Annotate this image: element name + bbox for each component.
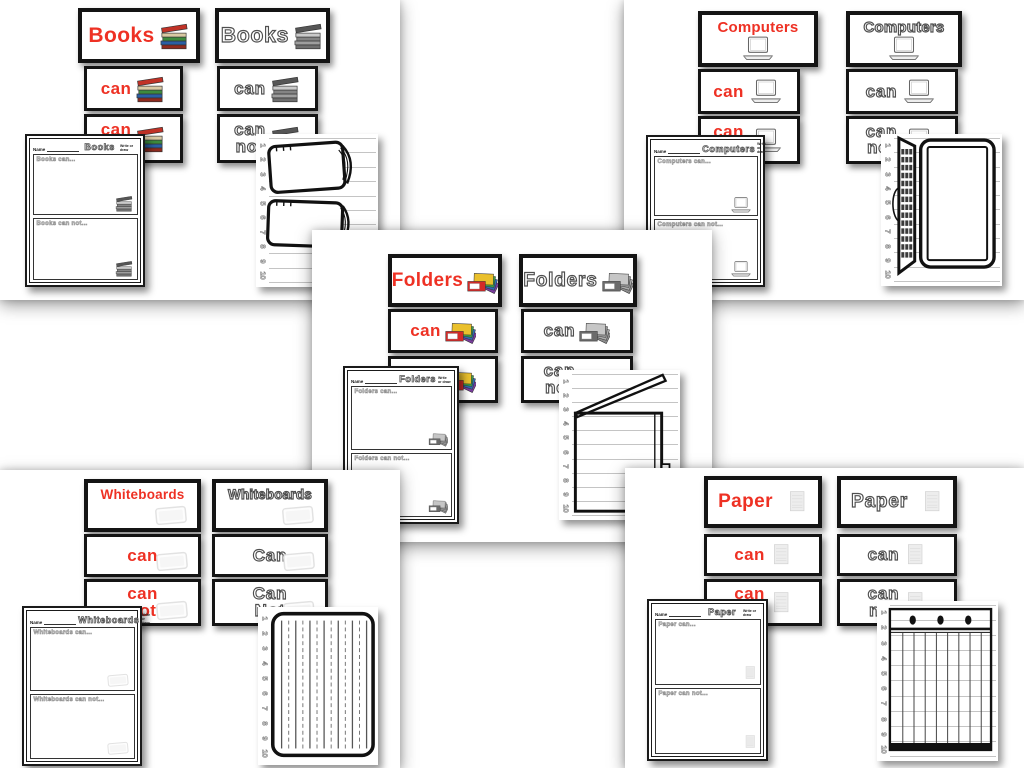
- worksheet-title: Folders: [399, 374, 436, 384]
- worksheet-can-prompt: Paper can...: [659, 622, 757, 628]
- folders-can-card-red: can: [388, 309, 498, 353]
- worksheet-corner-note: Write or draw: [438, 376, 451, 384]
- worksheet-can-box: Computers can...: [654, 156, 758, 216]
- worksheet-header: Name Folders Write or draw: [349, 372, 453, 384]
- books-stack-icon: [134, 75, 166, 103]
- worksheet-corner-note: Write or draw: [120, 144, 137, 152]
- computers-title-card-outline: Computers: [846, 11, 962, 67]
- computers-title-card-red: Computers: [698, 11, 818, 67]
- card-title-text: Computers: [718, 19, 799, 36]
- worksheet-corner-note: Write or draw: [757, 142, 766, 154]
- worksheet-name-line: [44, 619, 76, 625]
- worksheet-name-line: [47, 146, 79, 152]
- worksheet-corner-note: Write or draw: [743, 609, 760, 617]
- card-can-text: can: [866, 82, 898, 102]
- worksheet-can-box: Paper can...: [655, 619, 761, 685]
- laptop-icon: [747, 79, 785, 104]
- paper-title-card-red: Paper: [704, 476, 822, 528]
- worksheet-name-label: Name: [30, 620, 42, 625]
- folders-title-card-outline: Folders: [519, 254, 637, 307]
- laptop-icon: [900, 79, 938, 104]
- worksheet-name-line: [365, 378, 397, 384]
- worksheet-title: Paper: [703, 607, 741, 617]
- whiteboards-can-card-red: can: [84, 534, 201, 577]
- laptop-icon: [728, 261, 754, 277]
- worksheet-corner-note: Write or draw: [141, 613, 150, 625]
- whiteboards-title-card-red: Whiteboards: [84, 479, 201, 532]
- whiteboard-icon: [105, 740, 131, 756]
- card-can-text: can: [410, 321, 441, 341]
- books-can-card-red: can: [84, 66, 183, 111]
- card-title-text: Paper: [718, 491, 773, 513]
- paper-sheet-icon: [768, 541, 792, 569]
- worksheet-title: Computers: [702, 144, 755, 154]
- worksheet-title: Whiteboards: [78, 615, 139, 625]
- paper-worksheet-page: Name Paper Write or draw Paper can... Pa…: [647, 599, 768, 761]
- whiteboards-can-card-outline: Can: [212, 534, 328, 577]
- whiteboard-line-art: [258, 607, 378, 765]
- whiteboards-preview-panel[interactable]: Whiteboards Whiteboards can can not Can …: [0, 470, 400, 768]
- worksheet-can-prompt: Whiteboards can...: [34, 630, 131, 636]
- worksheet-can-not-prompt: Computers can not...: [658, 222, 754, 228]
- computers-can-card-red: can: [698, 69, 800, 114]
- whiteboard-icon: [277, 503, 319, 527]
- books-stack-icon: [114, 195, 134, 212]
- paper-sheet-icon: [919, 488, 943, 516]
- line-numbers-column: 12345678910: [882, 138, 894, 282]
- worksheet-can-box: Whiteboards can...: [30, 627, 135, 691]
- books-stack-icon: [158, 22, 190, 50]
- worksheet-can-box: Folders can...: [351, 386, 452, 450]
- whiteboard-icon: [151, 549, 193, 573]
- worksheet-header: Name Books Write or draw: [31, 140, 139, 152]
- folders-icon: [428, 430, 448, 447]
- line-numbers-column: 12345678910: [259, 611, 271, 761]
- worksheet-can-box: Books can...: [33, 154, 138, 216]
- worksheet-can-not-box: Paper can not...: [655, 688, 761, 754]
- whiteboard-icon: [278, 549, 320, 573]
- worksheet-can-prompt: Computers can...: [658, 159, 754, 165]
- notebook-paper-line-art: [877, 601, 998, 761]
- paper-writing-page: 12345678910: [877, 601, 998, 761]
- worksheet-header: Name Computers Write or draw: [652, 141, 759, 154]
- worksheet-name-label: Name: [33, 147, 45, 152]
- line-numbers-column: 12345678910: [878, 605, 890, 757]
- laptop-icon: [728, 197, 754, 213]
- whiteboard-icon: [151, 598, 193, 622]
- whiteboard-icon: [150, 503, 192, 527]
- computers-can-card-outline: can: [846, 69, 958, 114]
- folders-icon: [466, 267, 498, 295]
- card-can-text: can: [234, 79, 266, 99]
- card-title-text: Folders: [392, 270, 463, 292]
- books-stack-icon: [269, 75, 301, 103]
- worksheet-can-not-prompt: Books can not...: [37, 221, 134, 227]
- laptop-icon: [885, 36, 923, 61]
- folders-icon: [578, 317, 610, 345]
- worksheet-name-line: [669, 611, 701, 617]
- worksheet-can-prompt: Books can...: [37, 157, 134, 163]
- whiteboards-title-card-outline: Whiteboards: [212, 479, 328, 532]
- worksheet-can-not-box: Whiteboards can not...: [30, 694, 135, 758]
- worksheet-name-label: Name: [655, 612, 667, 617]
- laptop-icon: [739, 36, 777, 61]
- card-title-text: Whiteboards: [101, 487, 185, 502]
- paper-sheet-icon: [742, 664, 757, 682]
- card-can-text: can: [544, 321, 576, 341]
- folders-icon: [444, 317, 476, 345]
- line-numbers-column: 12345678910: [257, 138, 269, 283]
- whiteboard-icon: [105, 672, 131, 688]
- books-title-card-red: Books: [78, 8, 200, 63]
- folders-title-card-red: Folders: [388, 254, 502, 307]
- card-title-text: Folders: [523, 270, 597, 292]
- books-stack-icon: [292, 22, 324, 50]
- worksheet-can-prompt: Folders can...: [355, 389, 448, 395]
- computers-writing-page: 12345678910: [881, 134, 1002, 286]
- paper-sheet-icon: [902, 541, 926, 569]
- card-title-text: Computers: [864, 19, 945, 36]
- folders-icon: [601, 267, 633, 295]
- card-can-text: can: [734, 545, 765, 565]
- card-title-text: Books: [88, 24, 154, 48]
- paper-can-card-outline: can: [837, 534, 957, 576]
- worksheet-name-line: [668, 148, 700, 154]
- paper-sheet-icon: [784, 488, 808, 516]
- books-can-card-outline: can: [217, 66, 318, 111]
- worksheet-can-not-prompt: Whiteboards can not...: [34, 697, 131, 703]
- card-can-text: can: [101, 79, 132, 99]
- worksheet-can-not-prompt: Folders can not...: [355, 456, 448, 462]
- folders-icon: [428, 497, 448, 514]
- folders-can-card-outline: can: [521, 309, 633, 353]
- card-can-text: can: [713, 82, 744, 102]
- worksheet-name-label: Name: [654, 149, 666, 154]
- paper-can-card-red: can: [704, 534, 822, 576]
- worksheet-title: Books: [81, 142, 118, 152]
- whiteboards-worksheet-page: Name Whiteboards Write or draw Whiteboar…: [22, 606, 142, 766]
- worksheet-can-not-prompt: Paper can not...: [659, 691, 757, 697]
- paper-preview-panel[interactable]: Paper Paper can can not can can not: [625, 468, 1024, 768]
- card-title-text: Books: [221, 24, 289, 48]
- books-worksheet-page: Name Books Write or draw Books can... Bo…: [25, 134, 145, 287]
- card-title-text: Paper: [851, 491, 908, 513]
- worksheet-name-label: Name: [351, 379, 363, 384]
- worksheet-can-not-box: Books can not...: [33, 218, 138, 280]
- laptop-line-art: [881, 134, 1002, 286]
- line-numbers-column: 12345678910: [560, 374, 572, 516]
- paper-sheet-icon: [742, 733, 757, 751]
- paper-sheet-icon: [768, 589, 792, 617]
- worksheet-header: Name Whiteboards Write or draw: [28, 612, 136, 625]
- books-title-card-outline: Books: [215, 8, 330, 63]
- card-title-text: Whiteboards: [228, 487, 312, 502]
- worksheet-header: Name Paper Write or draw: [653, 605, 762, 617]
- whiteboards-writing-page: 12345678910: [258, 607, 378, 765]
- paper-title-card-outline: Paper: [837, 476, 957, 528]
- card-can-text: can: [868, 545, 900, 565]
- books-stack-icon: [114, 260, 134, 277]
